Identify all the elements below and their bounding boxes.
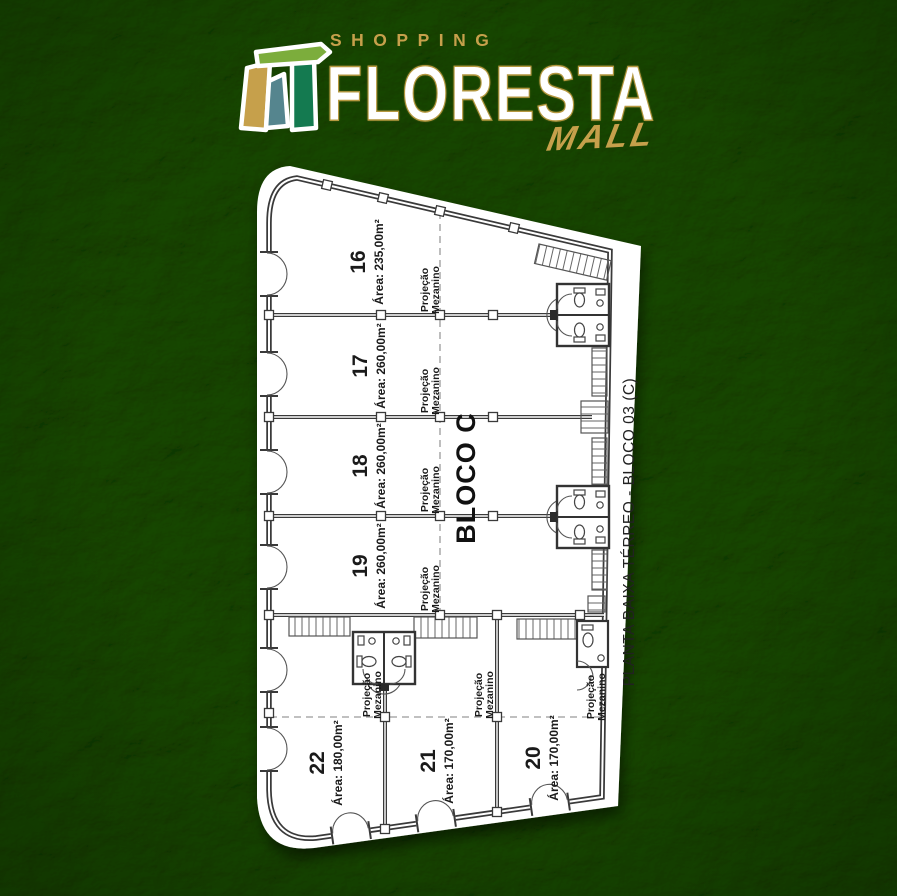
unit-19-area: Área: 260,00m²: [373, 523, 388, 608]
mezzanine-line2: Mezanino: [430, 565, 442, 613]
unit-22-number: 22: [306, 751, 329, 774]
unit-20-number: 20: [522, 746, 545, 769]
mezzanine-line2: Mezanino: [372, 671, 384, 719]
brush-stroke-dark-green: [292, 58, 316, 130]
plan-title-text: PLANTA BAIXA TÉRREO - BLOCO 03 (C): [621, 378, 638, 686]
mezzanine-label-20: Projeção Mezanino: [585, 673, 608, 721]
mezzanine-label-19: Projeção Mezanino: [419, 565, 442, 613]
mezzanine-line2: Mezanino: [430, 466, 442, 514]
mezzanine-line2: Mezanino: [596, 673, 608, 721]
mezzanine-label-22: Projeção Mezanino: [361, 671, 384, 719]
logo-mall-text: MALL: [544, 115, 659, 160]
unit-18-area: Área: 260,00m²: [373, 423, 388, 508]
unit-19-number: 19: [349, 554, 372, 577]
mezzanine-label-16: Projeção Mezanino: [419, 266, 442, 314]
poster: 16 Área: 235,00m² 17 Área: 260,00m² 18 Á…: [0, 0, 897, 896]
unit-17-number: 17: [349, 354, 372, 377]
unit-22-area: Área: 180,00m²: [330, 720, 345, 805]
unit-16-area: Área: 235,00m²: [371, 219, 386, 304]
plan-title-vertical: PLANTA BAIXA TÉRREO - BLOCO 03 (C): [621, 378, 638, 686]
mezzanine-line2: Mezanino: [484, 671, 496, 719]
mezzanine-label-18: Projeção Mezanino: [419, 466, 442, 514]
unit-17-area: Área: 260,00m²: [373, 323, 388, 408]
unit-21-area: Área: 170,00m²: [441, 718, 456, 803]
unit-21-number: 21: [417, 749, 440, 773]
brush-stroke-light-green: [256, 44, 330, 66]
mezzanine-label-21: Projeção Mezanino: [473, 671, 496, 719]
mezzanine-line2: Mezanino: [430, 266, 442, 314]
unit-20-area: Área: 170,00m²: [546, 715, 561, 800]
mezzanine-line2: Mezanino: [430, 367, 442, 415]
unit-16-number: 16: [347, 250, 370, 273]
brush-stroke-teal: [266, 74, 288, 128]
logo: SHOPPING FLORESTA MALL: [0, 0, 897, 180]
block-label-text: BLOCO C: [451, 412, 481, 544]
block-label: BLOCO C: [451, 412, 481, 544]
unit-18-number: 18: [349, 454, 372, 478]
mezzanine-label-17: Projeção Mezanino: [419, 367, 442, 415]
